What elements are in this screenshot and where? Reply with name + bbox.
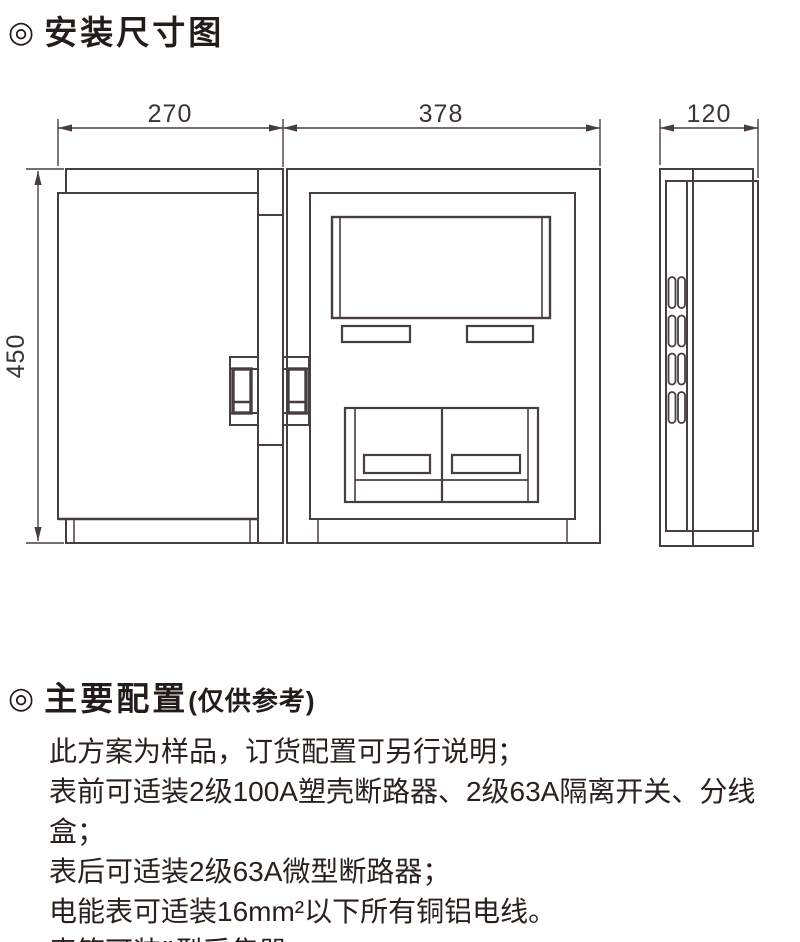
display-window: [332, 217, 550, 318]
double-circle-icon: ◎: [8, 682, 34, 715]
meter-compartment: [345, 408, 538, 502]
hinge-column: [258, 169, 283, 543]
dimension-270: 270: [58, 100, 283, 167]
door-handle-icon: [230, 357, 258, 425]
dimension-450: 450: [2, 169, 64, 543]
window-label-plates: [342, 326, 533, 342]
config-line: 表箱可装Ⅱ型采集器。: [49, 932, 800, 942]
installation-drawing: 270 378 120 450: [0, 0, 800, 620]
config-line: 表后可适装2级63A微型断路器；: [49, 852, 800, 892]
dim-label-450: 450: [2, 334, 30, 379]
dim-label-378: 378: [419, 100, 464, 128]
config-subtitle-text: (仅供参考): [188, 686, 315, 716]
config-description: 此方案为样品，订货配置可另行说明； 表前可适装2级100A塑壳断路器、2级63A…: [49, 732, 800, 942]
config-line: 表前可适装2级100A塑壳断路器、2级63A隔离开关、分线盒；: [49, 772, 800, 852]
dimension-378: 378: [283, 100, 600, 166]
cabinet-body: [287, 169, 600, 543]
side-view: [660, 169, 758, 546]
dim-label-270: 270: [148, 100, 193, 128]
config-title-text: 主要配置: [44, 680, 188, 717]
config-line: 电能表可适装16mm²以下所有铜铝电线。: [49, 892, 800, 932]
config-line: 此方案为样品，订货配置可另行说明；: [49, 732, 800, 772]
dimension-120: 120: [660, 100, 758, 178]
page: ◎安装尺寸图 270 378 120: [0, 0, 800, 942]
door-panel: [58, 169, 258, 543]
dim-label-120: 120: [687, 100, 732, 128]
section-title-config: ◎主要配置(仅供参考): [8, 672, 316, 720]
louver-vents: [669, 277, 686, 423]
